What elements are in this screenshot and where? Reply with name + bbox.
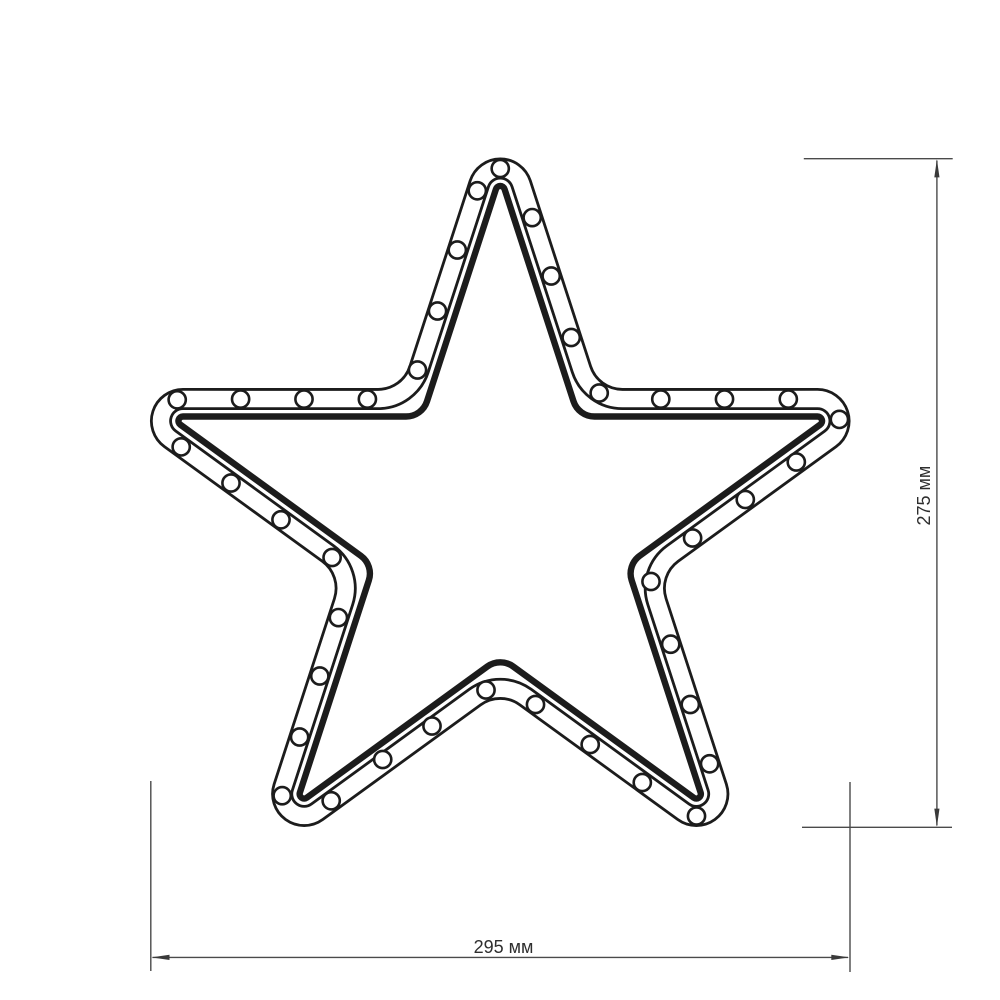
svg-text:295 мм: 295 мм (474, 937, 534, 957)
svg-text:275 мм: 275 мм (914, 466, 934, 526)
